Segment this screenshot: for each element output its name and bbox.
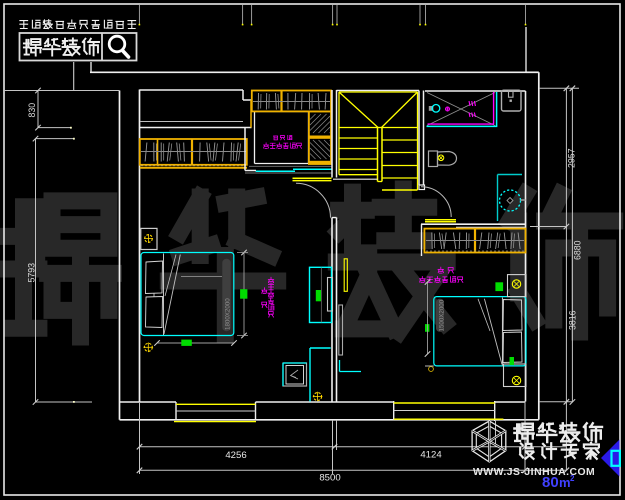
svg-text:4124: 4124 xyxy=(420,450,442,461)
svg-text:m: m xyxy=(559,475,571,490)
svg-text:2: 2 xyxy=(570,474,575,483)
svg-text:80: 80 xyxy=(542,474,559,491)
svg-text:8500: 8500 xyxy=(319,473,340,484)
svg-text:830: 830 xyxy=(27,103,37,118)
svg-text:2957: 2957 xyxy=(567,148,577,168)
svg-text:1800X2000: 1800X2000 xyxy=(225,298,232,330)
svg-text:WWW.JS-JINHUA.COM: WWW.JS-JINHUA.COM xyxy=(473,467,595,478)
svg-text:5793: 5793 xyxy=(27,263,37,283)
svg-text:3816: 3816 xyxy=(568,310,578,330)
svg-text:6880: 6880 xyxy=(573,240,583,260)
svg-text:1500X2000: 1500X2000 xyxy=(439,299,446,331)
svg-text:4256: 4256 xyxy=(225,450,246,461)
